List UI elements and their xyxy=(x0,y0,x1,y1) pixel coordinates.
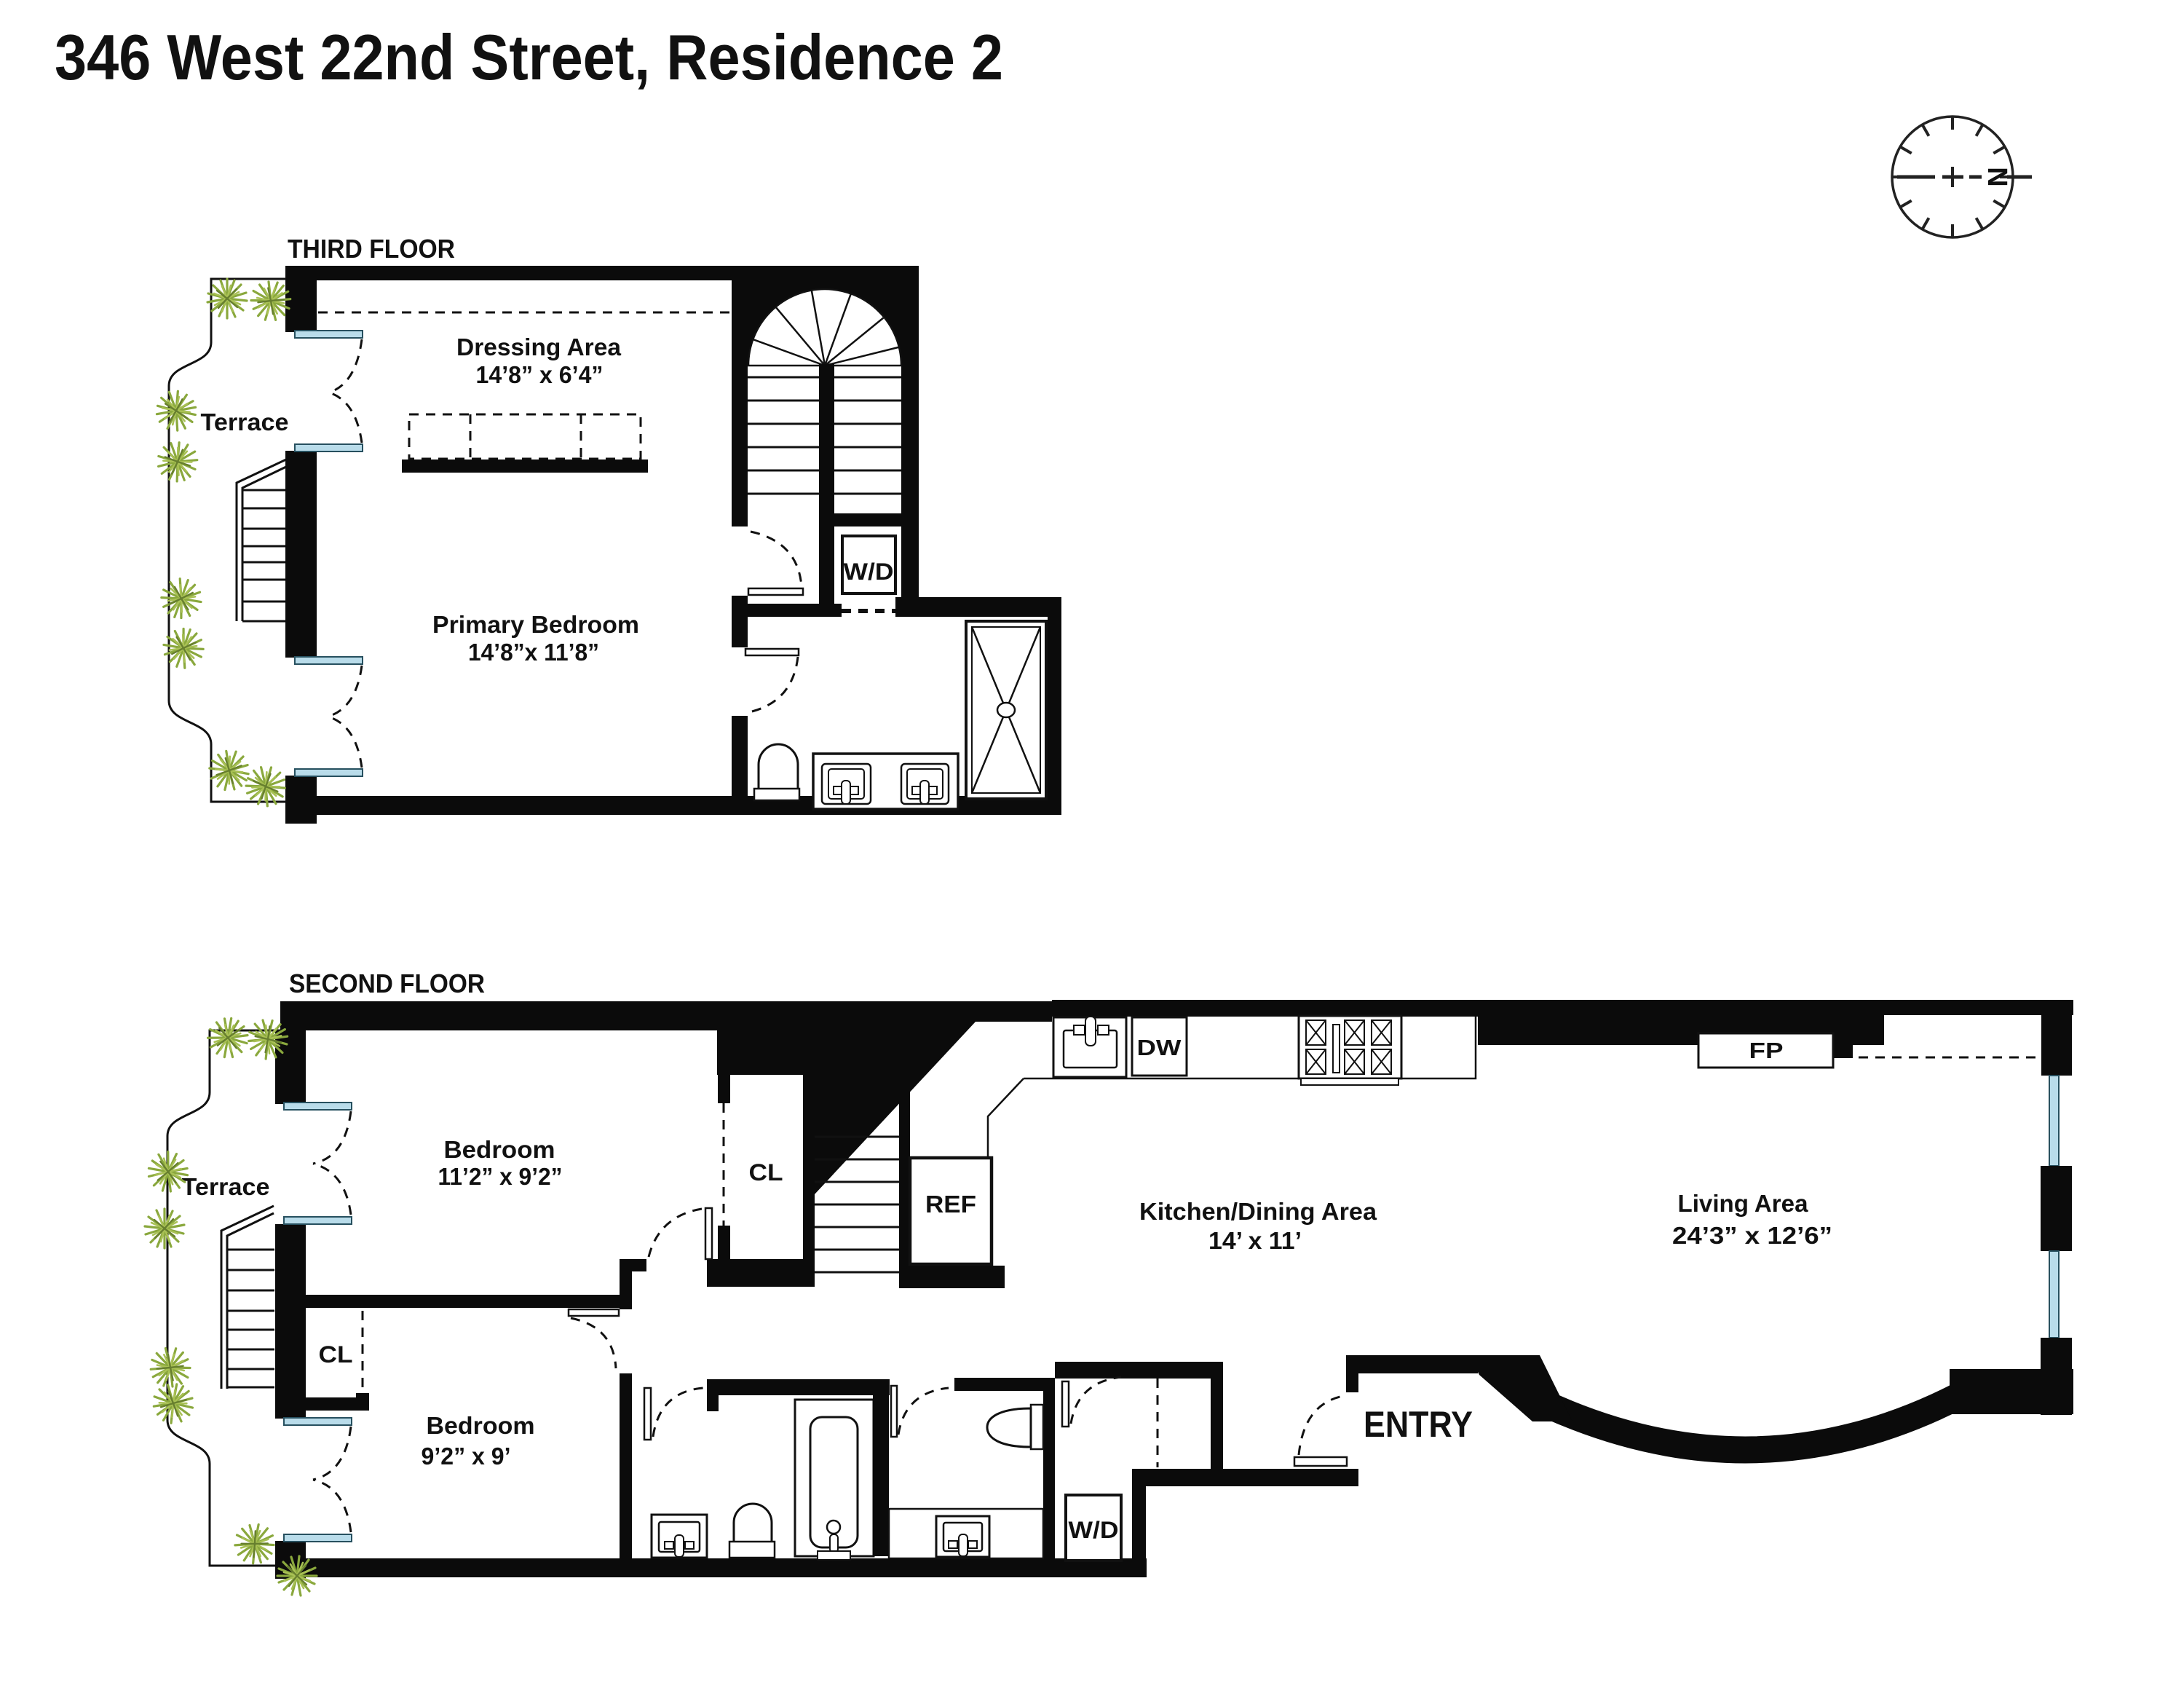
svg-text:SECOND FLOOR: SECOND FLOOR xyxy=(289,969,485,998)
svg-text:CL: CL xyxy=(749,1159,783,1186)
svg-text:N: N xyxy=(1982,167,2012,186)
svg-text:THIRD FLOOR: THIRD FLOOR xyxy=(288,234,455,264)
svg-text:ENTRY: ENTRY xyxy=(1364,1404,1473,1445)
svg-text:W/D: W/D xyxy=(1069,1517,1119,1543)
svg-text:24’3” x 12’6”: 24’3” x 12’6” xyxy=(1672,1222,1832,1249)
svg-text:Kitchen/Dining Area: Kitchen/Dining Area xyxy=(1139,1198,1377,1225)
svg-text:14’ x 11’: 14’ x 11’ xyxy=(1208,1227,1302,1254)
svg-text:Dressing Area: Dressing Area xyxy=(456,334,622,360)
svg-text:Bedroom: Bedroom xyxy=(427,1412,535,1439)
svg-text:14’8”x 11’8”: 14’8”x 11’8” xyxy=(468,639,599,666)
svg-text:Primary Bedroom: Primary Bedroom xyxy=(432,611,639,638)
svg-text:346 West 22nd Street, Residenc: 346 West 22nd Street, Residence 2 xyxy=(55,21,1003,93)
svg-text:CL: CL xyxy=(319,1341,353,1368)
svg-text:Terrace: Terrace xyxy=(182,1173,270,1200)
svg-text:Terrace: Terrace xyxy=(201,409,289,435)
svg-text:9’2” x 9’: 9’2” x 9’ xyxy=(422,1443,511,1470)
svg-text:Bedroom: Bedroom xyxy=(444,1136,555,1163)
svg-text:W/D: W/D xyxy=(844,559,894,585)
svg-text:Living Area: Living Area xyxy=(1678,1190,1809,1217)
svg-text:REF: REF xyxy=(925,1191,976,1218)
svg-text:11’2” x 9’2”: 11’2” x 9’2” xyxy=(438,1163,563,1190)
svg-text:14’8” x 6’4”: 14’8” x 6’4” xyxy=(476,361,604,388)
svg-text:DW: DW xyxy=(1137,1035,1182,1060)
svg-text:FP: FP xyxy=(1749,1038,1784,1063)
